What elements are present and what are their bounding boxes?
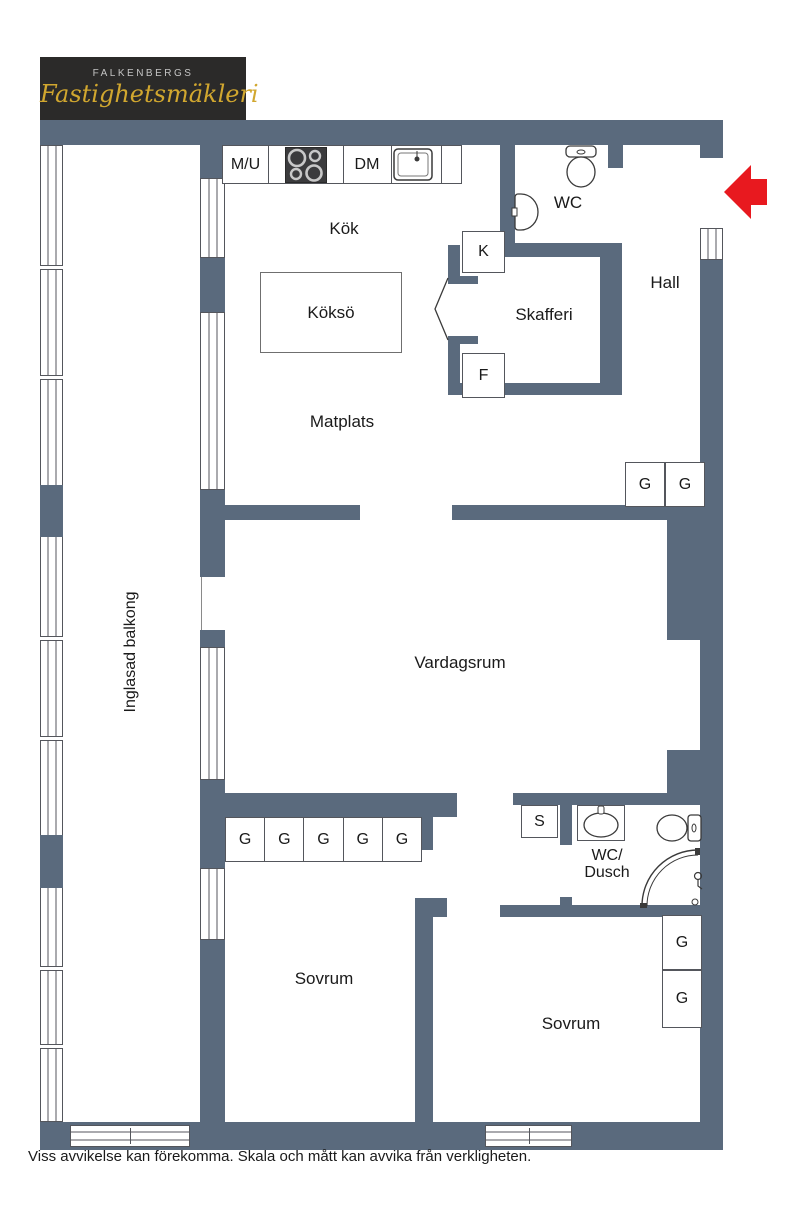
room-label-matplats: Matplats (310, 412, 374, 432)
micro-oven-label: M/U (223, 146, 268, 183)
washbasin-icon (512, 191, 546, 233)
entrance-arrow-icon (720, 160, 770, 222)
toilet-icon (559, 145, 603, 189)
disclaimer-text: Viss avvikelse kan förekomma. Skala och … (28, 1148, 531, 1165)
bathroom-sink-icon (577, 805, 625, 841)
wall (200, 630, 225, 647)
fridge-box: K (462, 231, 505, 273)
window-hall (700, 228, 723, 260)
wardrobe-box: G (344, 818, 383, 861)
wall (448, 338, 460, 395)
window-pane-divider (40, 736, 63, 741)
wardrobe-box: G (226, 818, 265, 861)
wall (200, 780, 225, 868)
wall (415, 898, 433, 1122)
window-kitchen (200, 178, 225, 258)
wall (40, 835, 63, 888)
wall (667, 520, 700, 640)
wardrobe-box: G (265, 818, 304, 861)
wall (200, 490, 225, 577)
room-label-sovrum-right: Sovrum (542, 1014, 601, 1034)
cleaning-closet-box: S (521, 805, 558, 838)
freezer-label: F (479, 367, 489, 385)
wall (200, 940, 225, 1122)
wardrobe-box: G (625, 462, 665, 507)
window-vardagsrum (200, 647, 225, 780)
pantry-double-door-icon (430, 276, 450, 342)
room-label-hall: Hall (650, 273, 679, 293)
room-label-kok: Kök (329, 219, 358, 239)
wall (513, 793, 700, 805)
floorplan-page: FALKENBERGS Fastighetsmäkleri (0, 0, 800, 1221)
wardrobe-label: G (676, 990, 688, 1008)
logo: FALKENBERGS Fastighetsmäkleri (40, 57, 246, 124)
wardrobe-label: G (239, 831, 251, 849)
logo-brand-script: Fastighetsmäkleri (40, 80, 246, 108)
room-label-vardagsrum: Vardagsrum (414, 653, 505, 673)
stove-icon (285, 147, 327, 183)
kitchen-island: Köksö (260, 272, 402, 353)
room-label-wc-dusch: WC/ Dusch (584, 847, 629, 881)
wardrobe-box: G (304, 818, 343, 861)
wardrobe-box: G (665, 462, 705, 507)
window-pane-divider (40, 1044, 63, 1049)
room-label-wc: WC (554, 193, 582, 213)
window-pane-divider (40, 265, 63, 270)
wall (40, 485, 63, 537)
wall (222, 505, 360, 520)
wall (667, 750, 700, 795)
wall (608, 145, 623, 168)
wardrobe-label: G (679, 476, 691, 494)
wall (200, 258, 225, 312)
room-label-wc-dusch-line2: Dusch (584, 864, 629, 881)
wall (700, 120, 723, 1150)
room-label-wc-dusch-line1: WC/ (591, 847, 622, 864)
window-pane-divider (40, 966, 63, 971)
window-balcony-bottom (70, 1125, 190, 1147)
counter-divider (268, 146, 269, 183)
wall (448, 336, 478, 344)
toilet-icon (656, 813, 706, 843)
room-label-skafferi: Skafferi (515, 305, 572, 325)
fridge-label: K (478, 243, 489, 261)
wardrobe-row: G G G G G (225, 817, 422, 862)
wardrobe-label: G (639, 476, 651, 494)
dishwasher-label: DM (343, 146, 391, 183)
wardrobe-box: G (662, 915, 702, 970)
room-label-inglasad-balkong: Inglasad balkong (122, 592, 140, 713)
counter-divider (441, 146, 442, 183)
window-pane-divider (40, 636, 63, 641)
wardrobe-label: G (356, 831, 368, 849)
room-label-kokso: Köksö (307, 303, 354, 323)
window-matplats (200, 312, 225, 490)
wall (433, 898, 447, 917)
wardrobe-box: G (662, 970, 702, 1028)
window-balcony-glazing (40, 145, 63, 1122)
balcony-opening-line (201, 577, 202, 630)
freezer-box: F (462, 353, 505, 398)
wall (600, 243, 622, 395)
wardrobe-label: G (317, 831, 329, 849)
logo-brand-top: FALKENBERGS (40, 57, 246, 79)
wall (225, 793, 457, 817)
wall (448, 276, 478, 284)
window-pane-divider (40, 375, 63, 380)
wardrobe-label: G (676, 934, 688, 952)
room-label-sovrum-left: Sovrum (295, 969, 354, 989)
wall (560, 805, 572, 845)
cleaning-closet-label: S (534, 813, 545, 831)
wall (452, 505, 700, 520)
wardrobe-label: G (396, 831, 408, 849)
wardrobe-box: G (383, 818, 421, 861)
window-sovrum-left (200, 868, 225, 940)
kitchen-sink-icon (393, 148, 433, 181)
window-sovrum-right-bottom (485, 1125, 572, 1147)
wall (40, 120, 723, 145)
shower-icon (640, 848, 702, 908)
counter-divider (391, 146, 392, 183)
wardrobe-label: G (278, 831, 290, 849)
